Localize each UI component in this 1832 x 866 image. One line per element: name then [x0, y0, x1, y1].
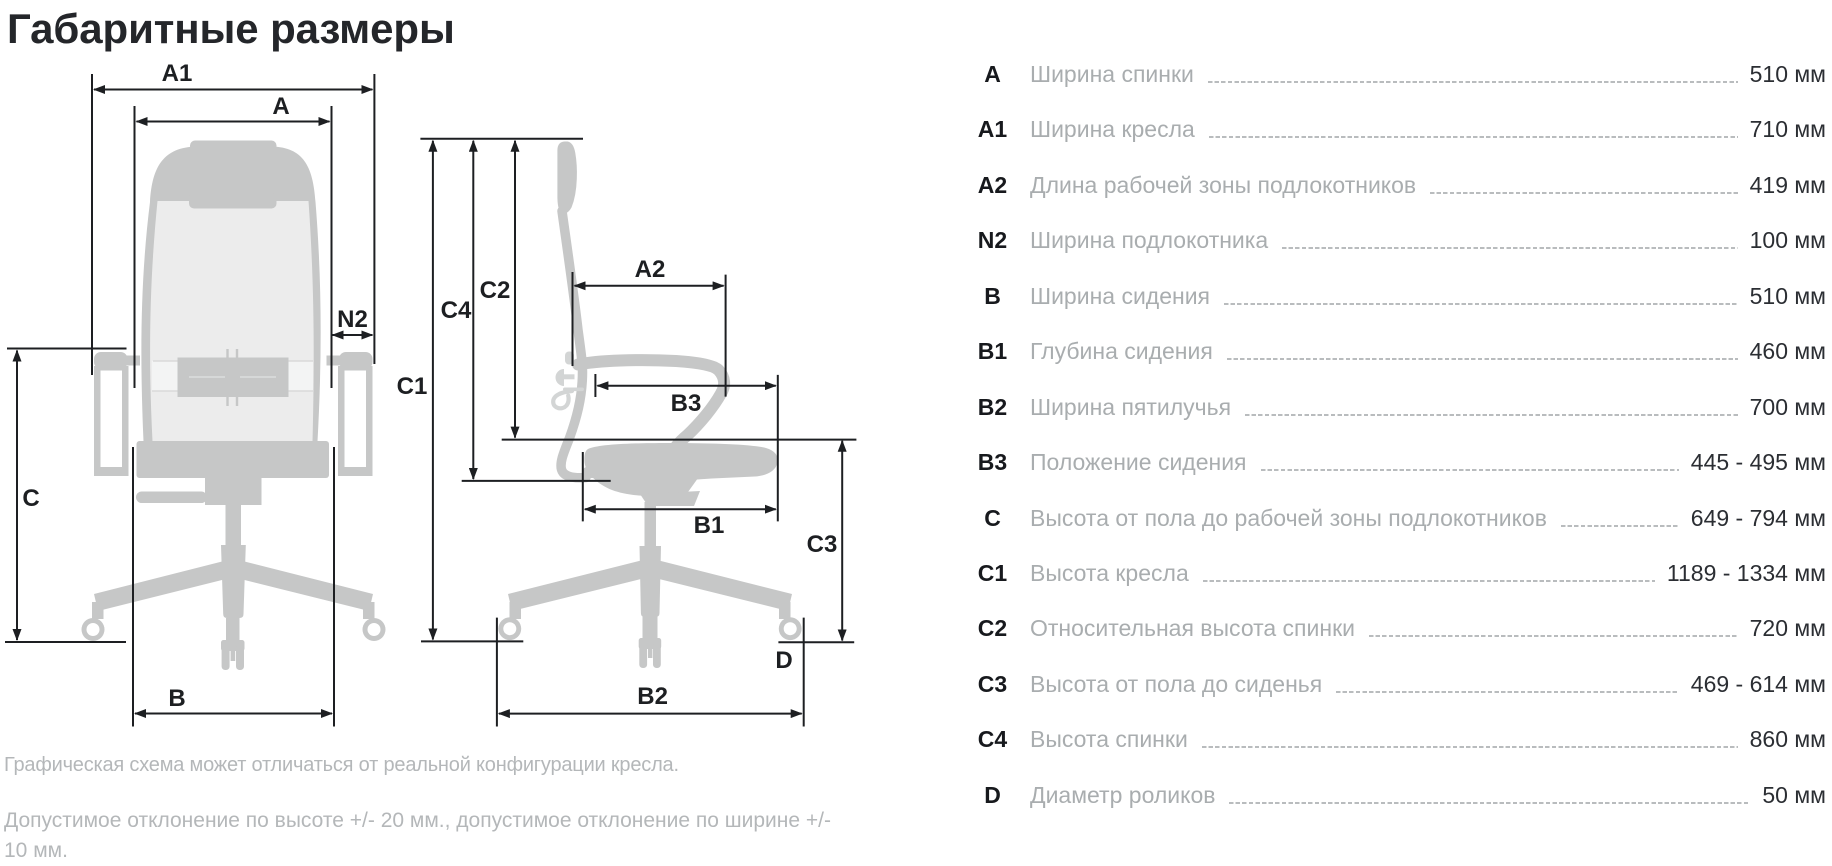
svg-text:B3: B3 [671, 390, 702, 417]
svg-text:C4: C4 [441, 297, 472, 324]
svg-text:A: A [272, 93, 289, 120]
svg-text:A1: A1 [162, 60, 193, 87]
svg-text:B: B [168, 685, 185, 712]
svg-text:A2: A2 [635, 256, 666, 283]
svg-text:C2: C2 [480, 277, 511, 304]
svg-text:C1: C1 [397, 373, 428, 400]
svg-text:N2: N2 [337, 306, 368, 333]
svg-text:C: C [22, 485, 39, 512]
svg-text:B1: B1 [694, 512, 725, 539]
svg-text:C3: C3 [807, 531, 838, 558]
svg-text:D: D [775, 647, 792, 674]
svg-text:B2: B2 [637, 683, 668, 710]
